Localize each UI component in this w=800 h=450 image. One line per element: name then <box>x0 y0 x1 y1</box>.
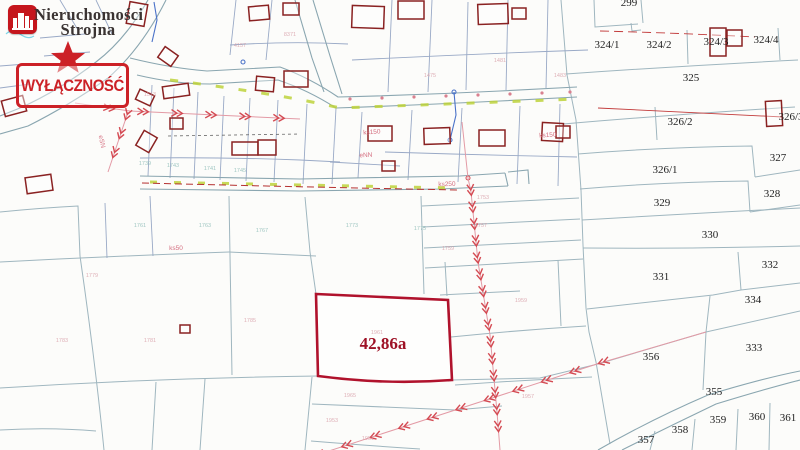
power-line <box>462 122 500 450</box>
company-name: Nieruchomości Strojna <box>34 7 142 37</box>
building-outline <box>248 5 269 21</box>
highlight-area-label: 42,86a <box>360 334 407 353</box>
power-line-arrow <box>426 412 439 422</box>
company-logo-icon <box>8 5 37 34</box>
highlight-parcel: 42,86a <box>316 294 452 382</box>
survey-point-label: 1953 <box>326 418 338 424</box>
parcel-number-label: 357 <box>638 434 655 446</box>
survey-point-label: 1779 <box>86 273 98 279</box>
survey-point-label: 1783 <box>56 338 68 344</box>
survey-point-label: 1739 <box>139 161 151 167</box>
parcel-number-label: 358 <box>672 424 689 436</box>
survey-point-label: 1957 <box>522 394 534 400</box>
survey-point-label: 1757 <box>475 223 487 229</box>
utility-line-label: ks150 <box>363 128 381 136</box>
parcel-number-label: 334 <box>745 294 762 306</box>
building-outline <box>232 142 258 155</box>
buildings-icon <box>8 5 37 34</box>
power-line-arrow <box>476 268 484 280</box>
building-outline <box>283 3 299 15</box>
survey-point-label: 1743 <box>167 163 179 169</box>
parcel-number-label: 359 <box>710 414 727 426</box>
survey-point-label: 1753 <box>477 195 489 201</box>
survey-point-label: 1763 <box>199 223 211 229</box>
power-line-arrow <box>455 403 468 413</box>
building-outline <box>727 30 742 46</box>
parcel-number-label: 324/2 <box>646 39 671 51</box>
survey-point-label: 4157 <box>234 43 246 49</box>
survey-point-label: 1741 <box>204 166 216 172</box>
building-outline <box>25 174 53 193</box>
power-line-arrow <box>597 357 610 367</box>
power-line-arrow <box>467 184 475 196</box>
parcel-number-label: 332 <box>762 259 779 271</box>
exclusivity-stamp: WYŁĄCZNOŚĆ <box>16 63 129 108</box>
listing-map-image: 42,86a 299324/1324/2324/3324/4325326/232… <box>0 0 800 450</box>
building-outline <box>478 3 509 24</box>
power-line-arrow <box>481 302 489 314</box>
power-line-arrow <box>110 146 120 159</box>
survey-point-label: 1965 <box>344 393 356 399</box>
building-outline <box>180 325 190 333</box>
utility-line-label: ks50 <box>169 245 183 252</box>
survey-point-label: 1951 <box>362 436 374 442</box>
utility-line-label: ks250 <box>438 181 456 189</box>
power-lines <box>75 103 706 450</box>
power-line-arrow <box>484 319 492 331</box>
brand-header: Nieruchomości Strojna WYŁĄCZNOŚĆ <box>0 0 200 130</box>
survey-point-label: 1483 <box>554 73 566 79</box>
parcel-number-label: 327 <box>770 152 787 164</box>
building-outline <box>424 128 451 145</box>
building-outline <box>352 5 385 28</box>
parcel-number-label: 328 <box>764 188 781 200</box>
survey-point-label: 1767 <box>256 228 268 234</box>
survey-point-label: 1785 <box>244 318 256 324</box>
parcel-number-label: 299 <box>621 0 638 9</box>
survey-point-label: 1781 <box>144 338 156 344</box>
survey-point-label: 1475 <box>424 73 436 79</box>
survey-point-label: 1481 <box>494 58 506 64</box>
survey-point-label: 1961 <box>371 330 383 336</box>
company-name-line2: Strojna <box>34 22 142 37</box>
building-outline <box>258 140 276 155</box>
building-outline <box>255 76 274 92</box>
utility-line-label: ks150 <box>539 131 557 139</box>
parcel-number-label: 355 <box>706 386 723 398</box>
parcel-number-label: 326/2 <box>667 116 692 128</box>
survey-point-label: 1959 <box>515 298 527 304</box>
utility-line-label: eNN <box>359 152 373 160</box>
power-line-arrow <box>569 366 582 376</box>
building-outline <box>382 161 395 171</box>
parcel-number-label: 324/1 <box>594 39 619 51</box>
survey-point-label: 1775 <box>414 226 426 232</box>
parcel-number-label: 329 <box>654 197 671 209</box>
parcel-number-label: 326/3 <box>778 111 800 123</box>
survey-point-label: 1759 <box>442 246 454 252</box>
parcel-number-label: 324/3 <box>703 36 729 48</box>
survey-point-label: 1761 <box>134 223 146 229</box>
parcel-number-label: 360 <box>749 411 766 423</box>
parcel-number-label: 326/1 <box>652 164 677 176</box>
building-outline <box>284 71 308 87</box>
parcel-number-label: 361 <box>780 412 797 424</box>
parcel-number-label: 325 <box>683 72 700 84</box>
parcel-number-label: 331 <box>653 271 670 283</box>
survey-point-label: 8371 <box>284 32 296 38</box>
parcel-number-label: 356 <box>643 351 660 363</box>
power-line-arrow <box>341 440 354 450</box>
building-outline <box>556 126 570 138</box>
utility-line-label: eSN <box>97 135 107 149</box>
power-line-arrow <box>479 285 487 297</box>
building-outline <box>136 130 157 152</box>
power-line-arrow <box>398 422 411 432</box>
building-outline <box>479 130 505 146</box>
building-outline <box>398 1 424 19</box>
parcel-number-label: 324/4 <box>753 34 779 46</box>
building-outline <box>512 8 526 19</box>
exclusivity-stamp-label: WYŁĄCZNOŚĆ <box>21 76 124 96</box>
survey-point-label: 1773 <box>346 223 358 229</box>
parcel-number-label: 333 <box>746 342 763 354</box>
survey-point-label: 1745 <box>234 168 246 174</box>
parcel-number-label: 330 <box>702 229 719 241</box>
